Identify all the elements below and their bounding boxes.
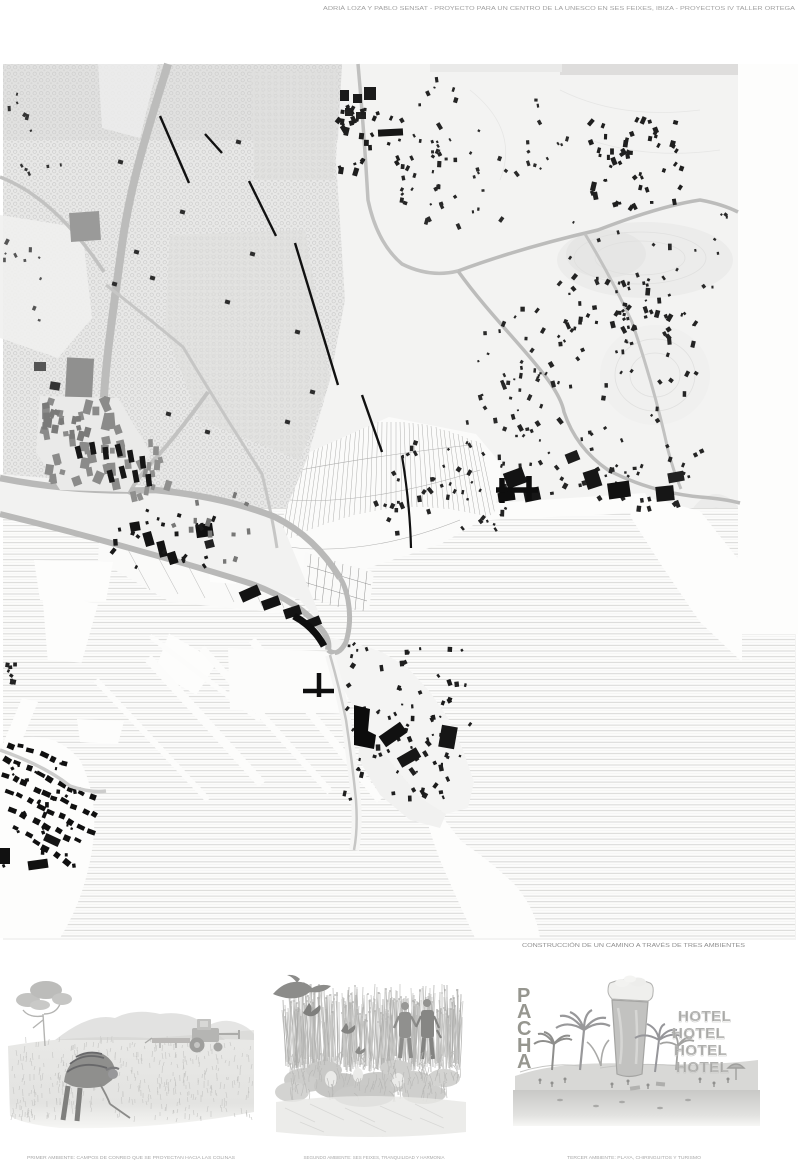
svg-text:TERCER AMBIENTE: PLAYA, CHIRIN: TERCER AMBIENTE: PLAYA, CHIRINGUITOS Y T…: [567, 1155, 701, 1161]
svg-text:HOTEL: HOTEL: [672, 1026, 725, 1043]
svg-text:PRIMER AMBIENTE: CAMPOS DE CON: PRIMER AMBIENTE: CAMPOS DE CONREO QUE SE…: [27, 1155, 235, 1161]
svg-text:HOTEL: HOTEL: [678, 1009, 731, 1026]
svg-text:SEGUNDO AMBIENTE: SES FEIXES,: SEGUNDO AMBIENTE: SES FEIXES, TRANQUILID…: [304, 1155, 446, 1161]
svg-text:CONSTRUCCIÓN DE UN CAMINO A TR: CONSTRUCCIÓN DE UN CAMINO A TRAVÉS DE TR…: [522, 942, 745, 949]
svg-text:ADRIÀ LOZA Y PABLO SENSAT - PR: ADRIÀ LOZA Y PABLO SENSAT - PROYECTO PAR…: [323, 5, 795, 12]
svg-text:HOTEL: HOTEL: [676, 1060, 729, 1077]
svg-text:HOTEL: HOTEL: [674, 1043, 727, 1060]
svg-text:A: A: [517, 1051, 531, 1073]
